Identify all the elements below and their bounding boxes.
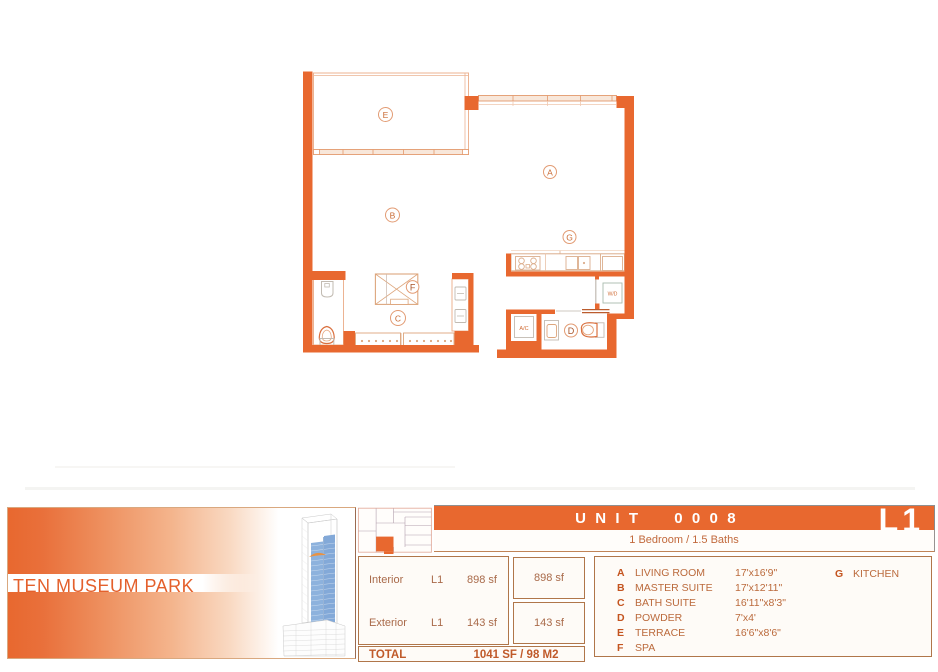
svg-text:A: A xyxy=(547,168,553,178)
svg-text:W/D: W/D xyxy=(608,292,618,298)
svg-text:F: F xyxy=(410,282,416,292)
svg-text:A/C: A/C xyxy=(519,326,528,332)
svg-text:E: E xyxy=(383,110,389,120)
svg-text:C: C xyxy=(395,314,401,324)
svg-text:B: B xyxy=(390,211,396,221)
svg-text:G: G xyxy=(566,233,573,243)
svg-text:D: D xyxy=(568,326,575,336)
